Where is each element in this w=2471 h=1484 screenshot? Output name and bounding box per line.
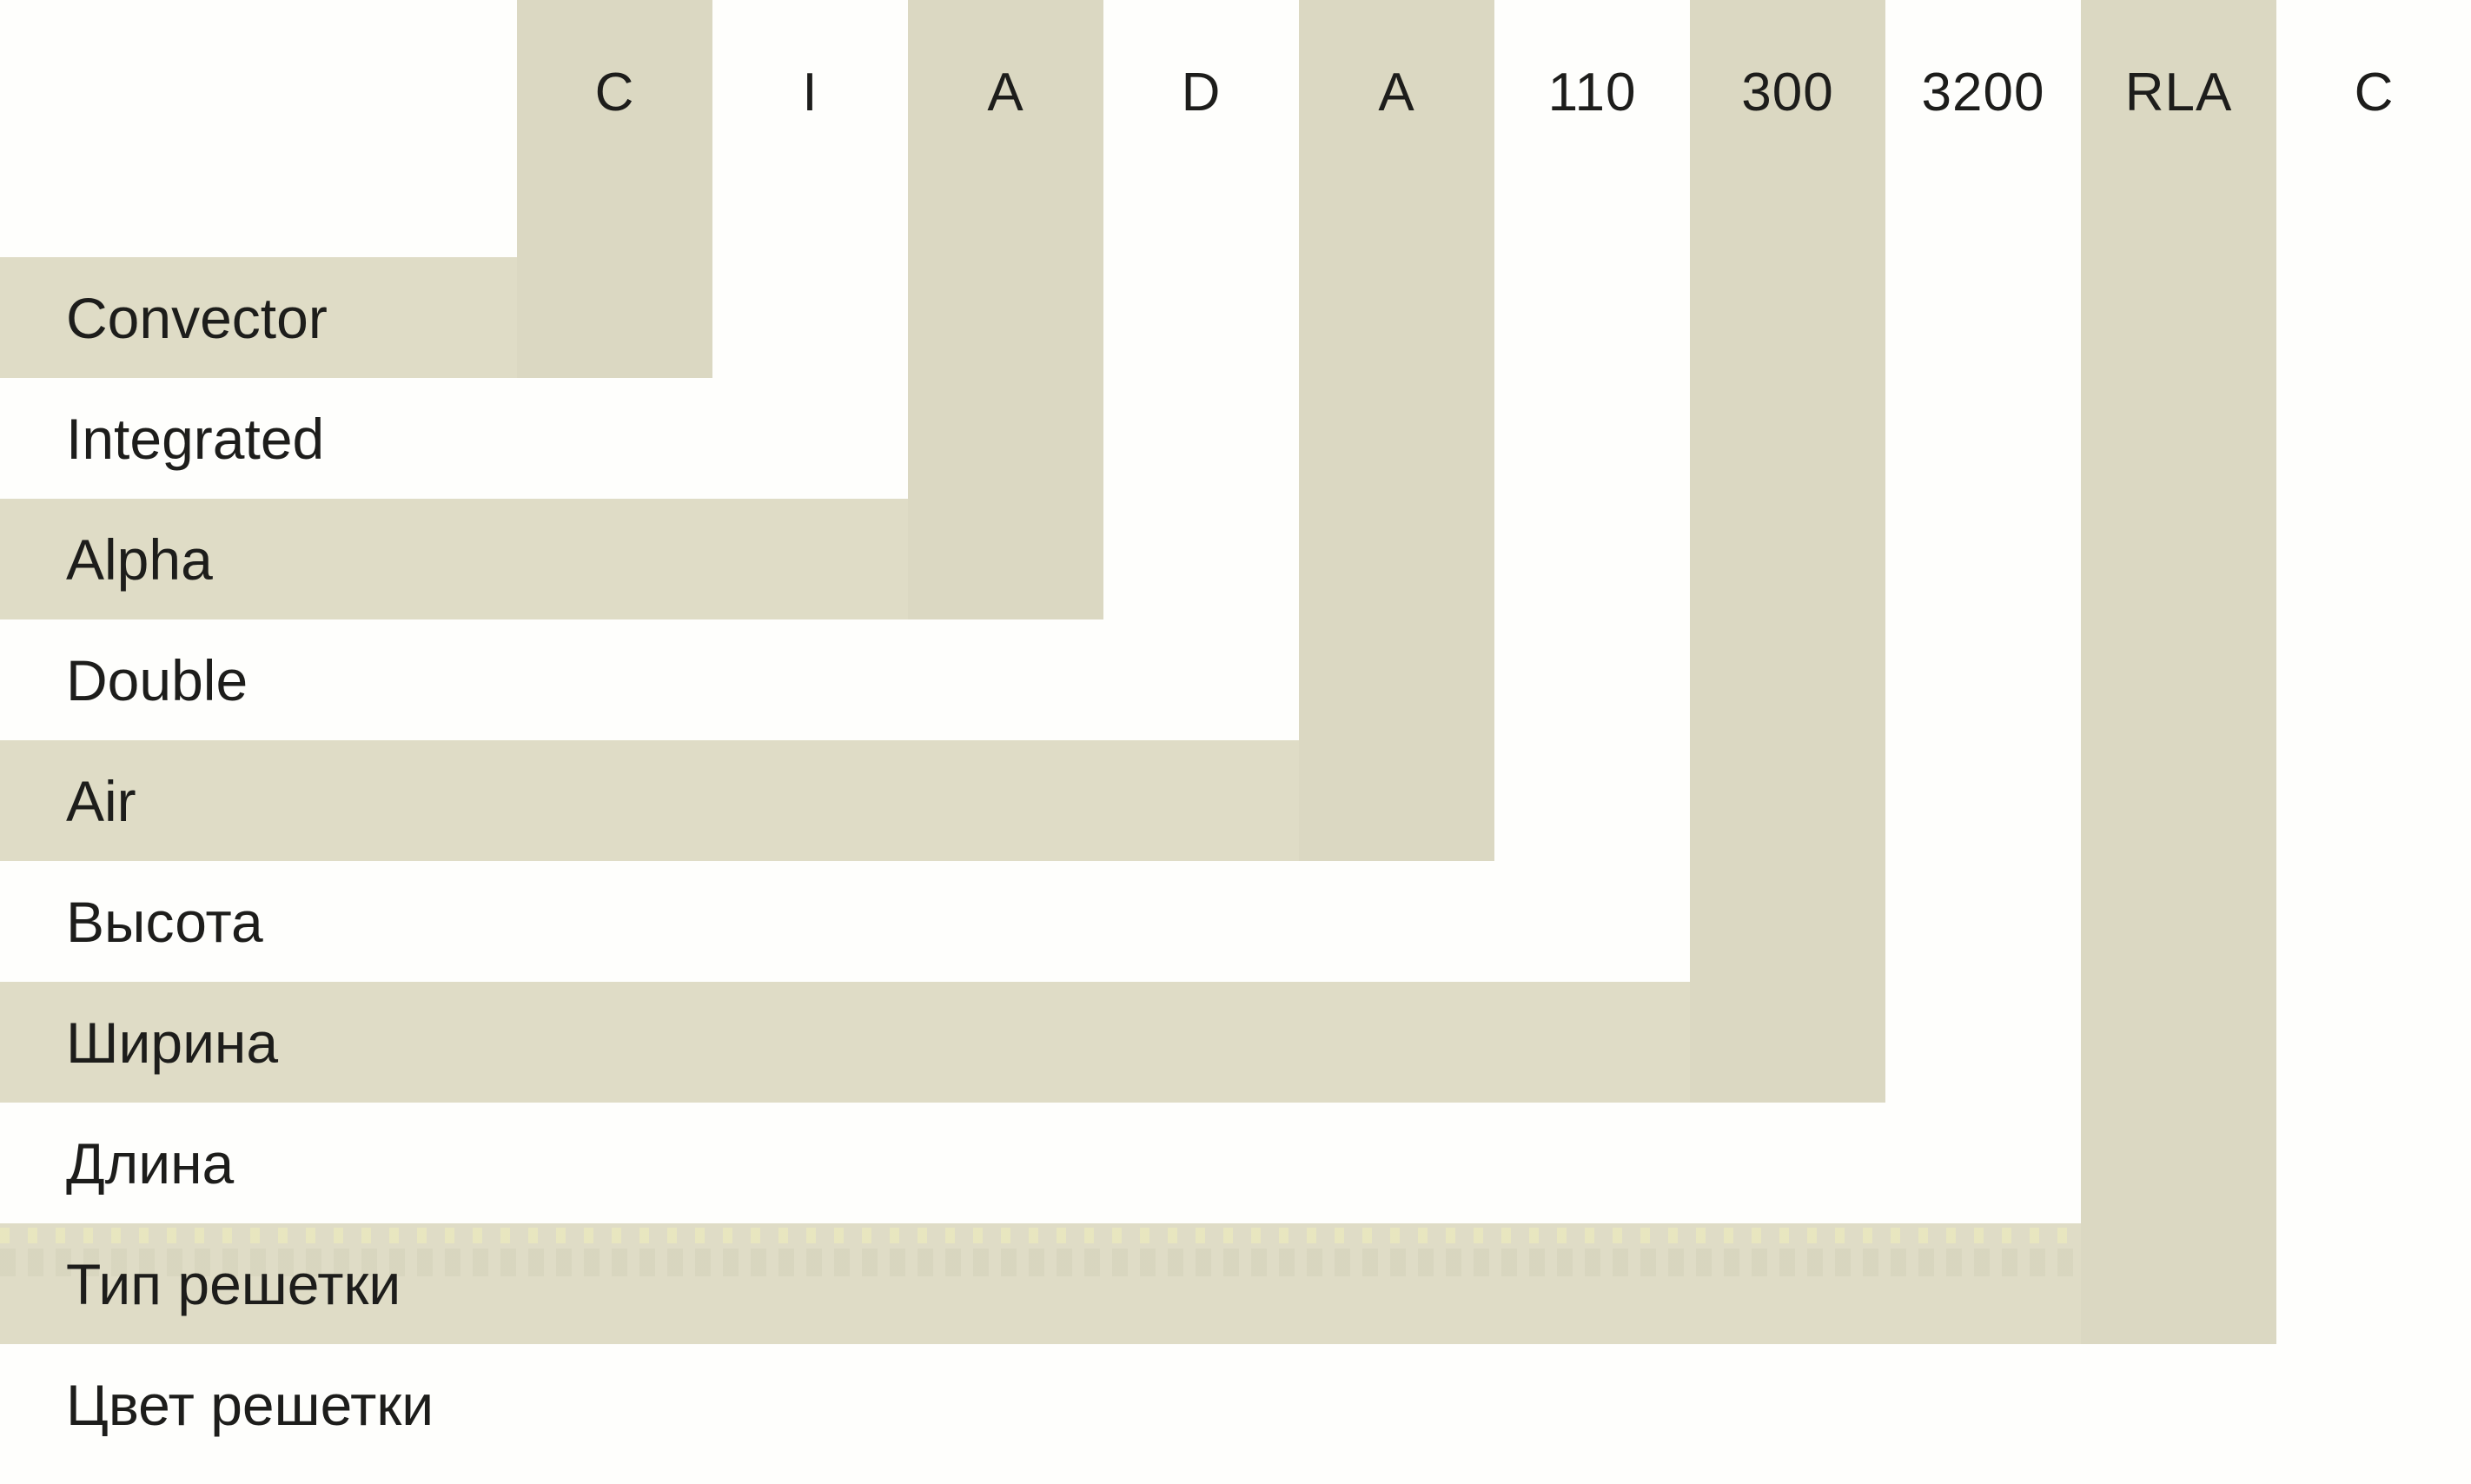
- code-column-band: [2081, 0, 2276, 1344]
- row-label: Alpha: [66, 499, 213, 619]
- code-segment: C: [2276, 54, 2471, 130]
- row-label: Высота: [66, 861, 263, 982]
- code-column-band: [1690, 0, 1885, 1103]
- label-row-band: [0, 740, 1494, 861]
- row-label: Air: [66, 740, 136, 861]
- row-label: Convector: [66, 257, 328, 378]
- nomenclature-diagram: CIADA1103003200RLACConvectorIntegratedAl…: [0, 0, 2471, 1484]
- label-row-band: [0, 982, 1885, 1103]
- code-segment: C: [517, 54, 712, 130]
- row-label: Ширина: [66, 982, 278, 1103]
- code-segment: A: [908, 54, 1103, 130]
- code-segment: RLA: [2081, 54, 2276, 130]
- code-segment: I: [712, 54, 908, 130]
- code-segment: 3200: [1885, 54, 2081, 130]
- row-label: Integrated: [66, 378, 324, 499]
- row-label: Double: [66, 619, 248, 740]
- row-label: Тип решетки: [66, 1223, 401, 1344]
- code-segment: D: [1103, 54, 1299, 130]
- code-segment: 110: [1494, 54, 1690, 130]
- code-segment: 300: [1690, 54, 1885, 130]
- row-label: Длина: [66, 1103, 234, 1223]
- code-segment: A: [1299, 54, 1494, 130]
- row-label: Цвет решетки: [66, 1344, 434, 1465]
